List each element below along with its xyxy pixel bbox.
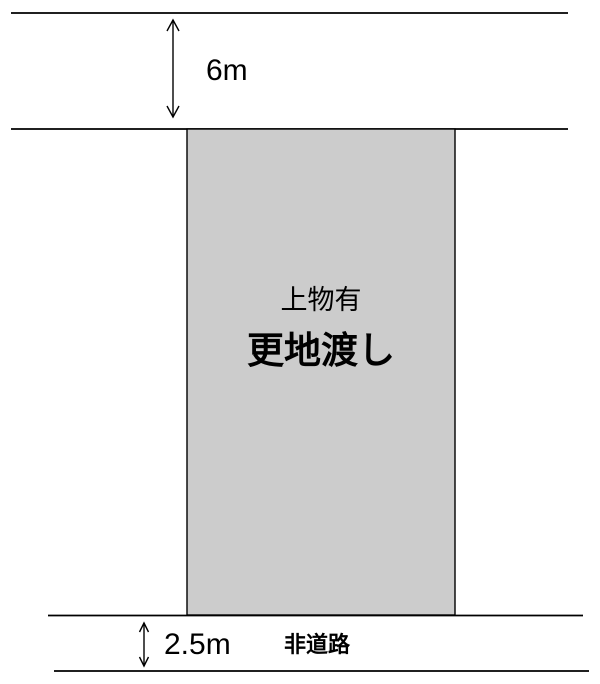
plot-delivery-label: 更地渡し [187, 332, 455, 369]
plot-text-block: 上物有 更地渡し [187, 287, 455, 369]
dimension-double-arrow-2-5m-icon [140, 623, 149, 666]
dimension-label-2-5m: 2.5m [164, 630, 231, 660]
plot-structures-label: 上物有 [187, 287, 455, 314]
land-plot-rect [187, 129, 455, 615]
dimension-double-arrow-6m-icon [167, 20, 179, 117]
non-road-label: 非道路 [284, 634, 350, 656]
land-plot-diagram: 6m 上物有 更地渡し 2.5m 非道路 [0, 0, 600, 684]
dimension-label-6m: 6m [206, 56, 248, 86]
